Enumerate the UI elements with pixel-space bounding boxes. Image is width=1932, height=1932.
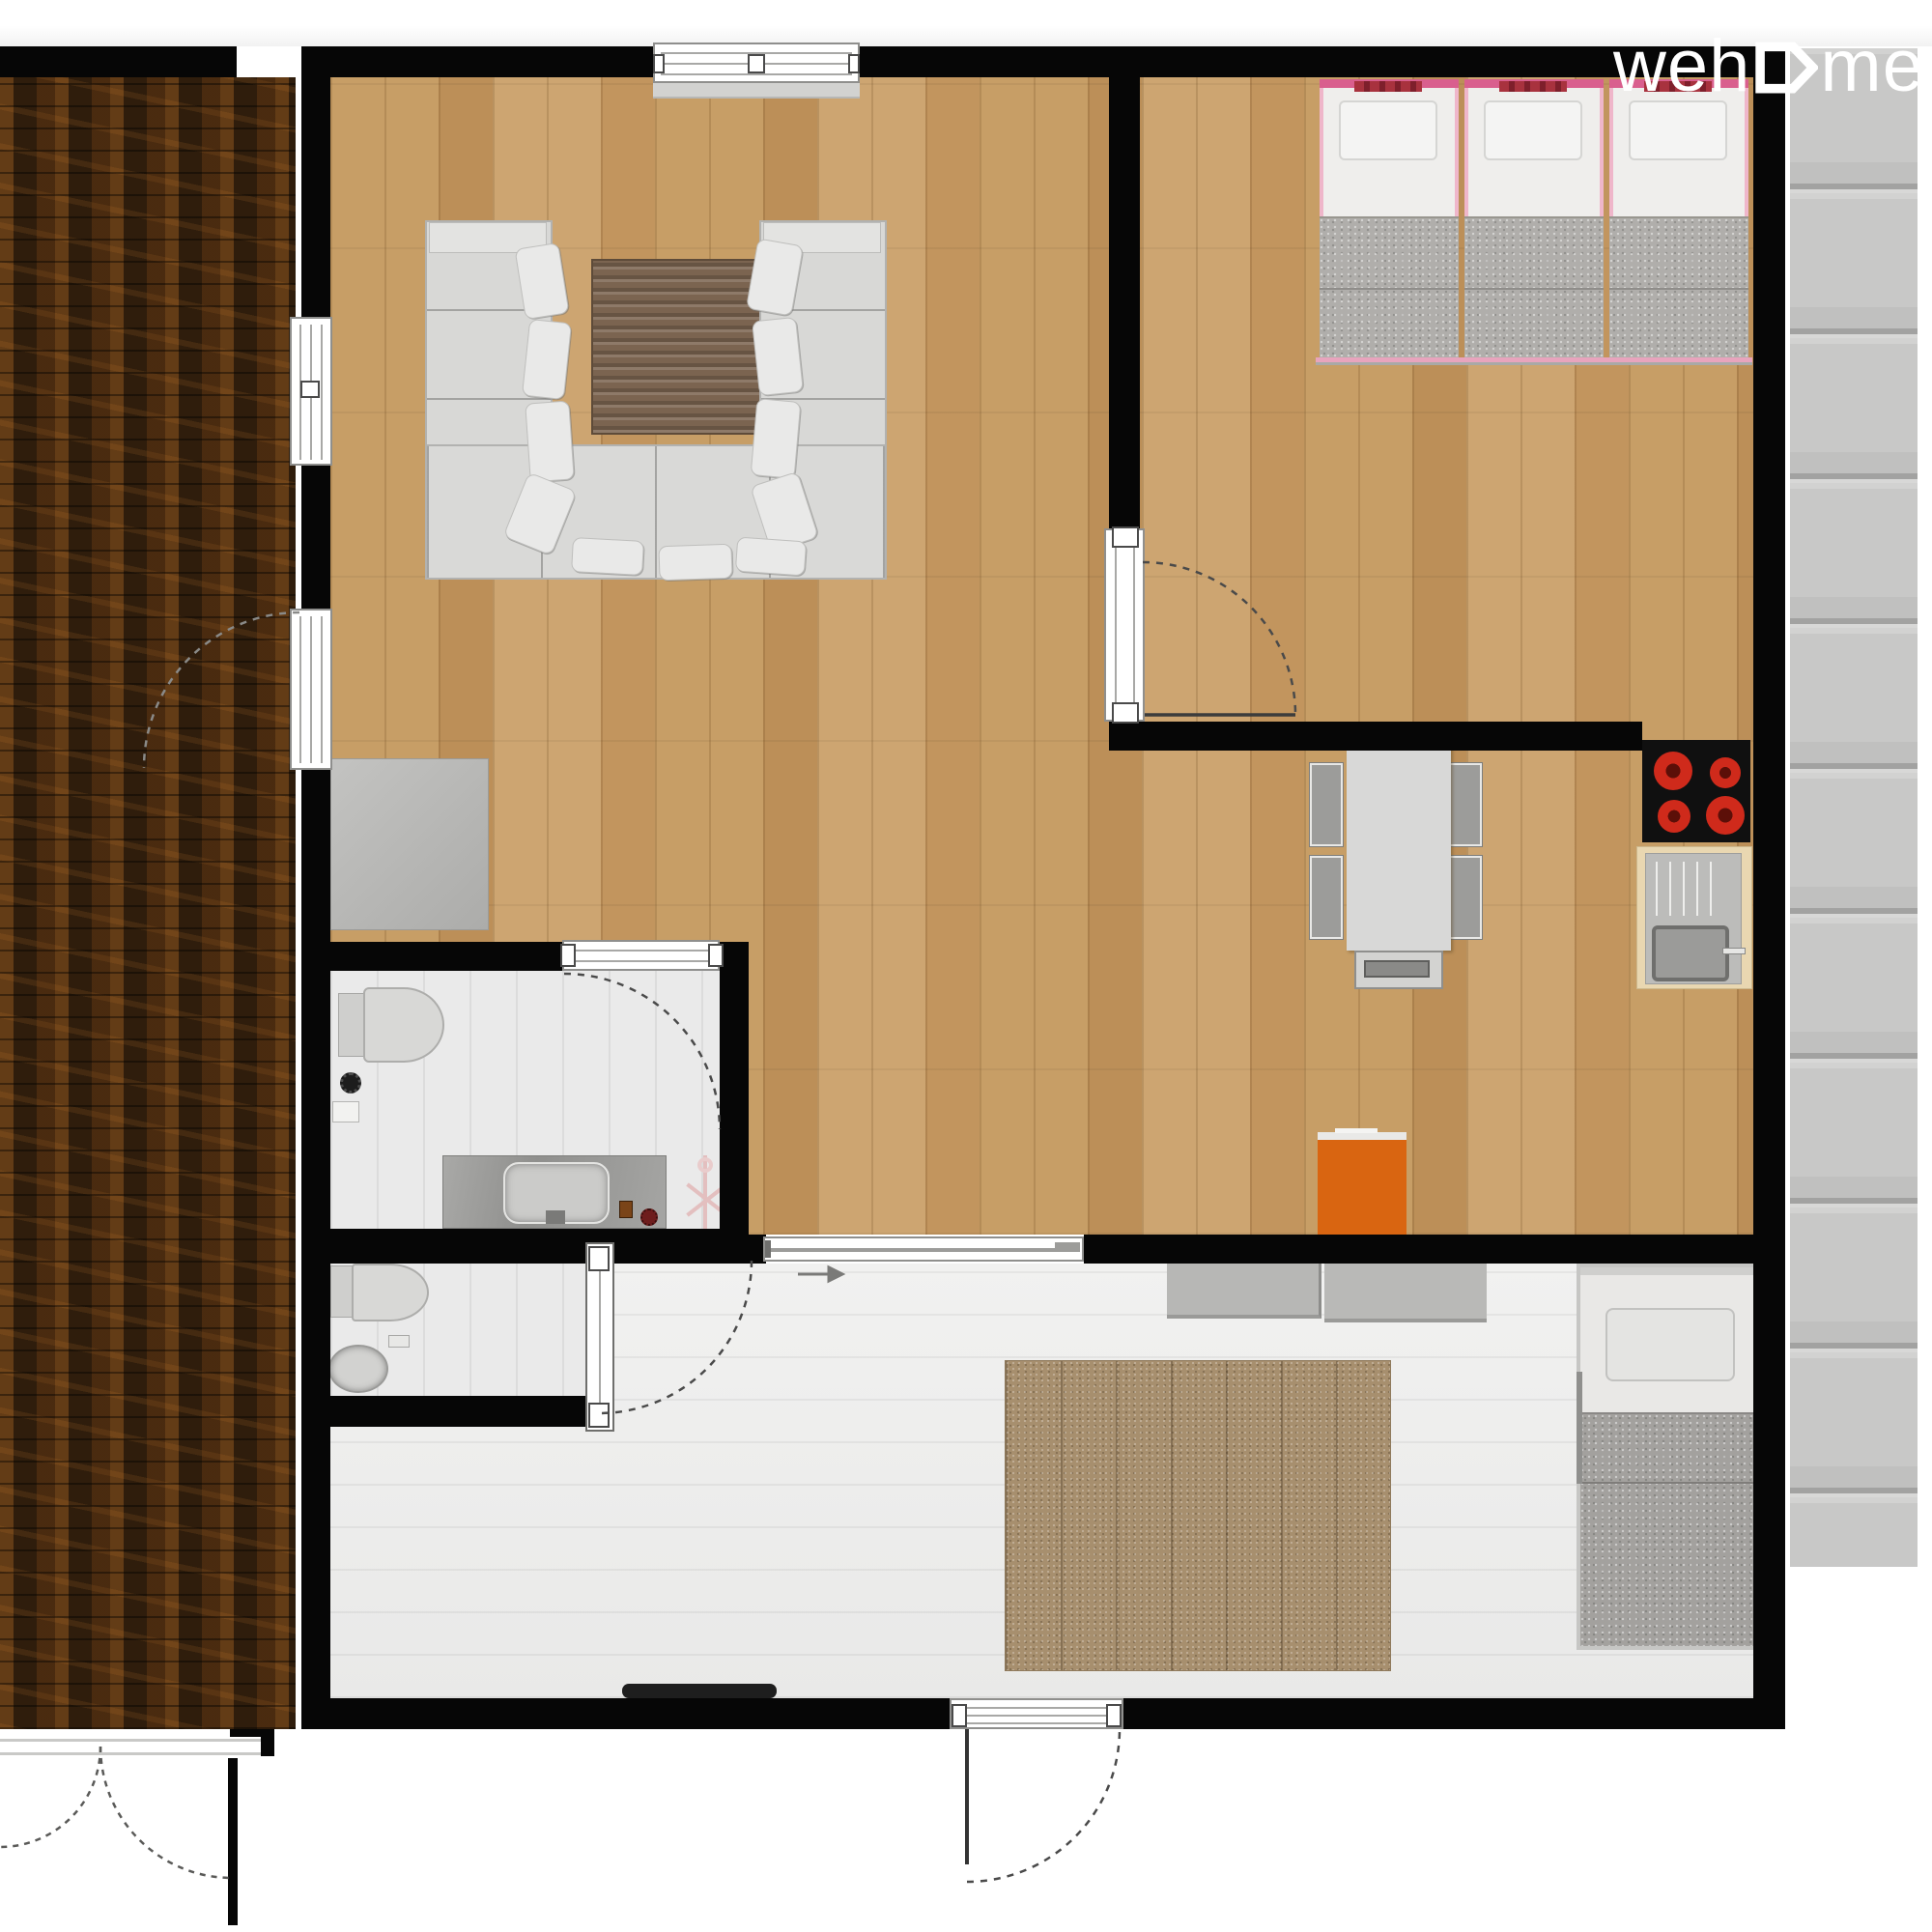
floor-plan: weh me [0,0,1932,1932]
bed-head-rail [1580,1267,1758,1275]
bed-side-rail [1577,1372,1582,1484]
bed-blanket [1580,1412,1758,1646]
sliding-door-frame [763,1236,1084,1262]
area-rug [1005,1360,1391,1671]
side-cabinet [330,758,489,930]
bed-pillow [1484,100,1582,160]
entry-single-bed [1577,1264,1762,1650]
right-wall [1753,46,1785,1729]
left-wall-upper [301,46,330,319]
faucet [1723,949,1745,953]
bedroom-partition-wall [1109,46,1140,528]
toilet-tank [338,993,365,1057]
dining-table [1347,744,1451,951]
sofa-pillow [752,317,804,396]
bed-pillow [1339,100,1437,160]
flower-pot [640,1208,658,1226]
bathroom-right-wall [720,942,749,1264]
dining-chair [1449,856,1482,939]
sofa-pillow [751,398,802,479]
burner [1658,800,1690,833]
bathroom-toilet [338,987,446,1063]
floor-drain [340,1072,361,1094]
counter-steel-top [1645,853,1742,984]
mainroom-bottom-wall [1084,1235,1753,1264]
sofa-bottom-seat [425,444,887,580]
sink-basin [1652,925,1729,981]
burner [1654,752,1692,790]
bathroom-bottom-wall [301,1229,749,1264]
stone-vanity [442,1155,667,1229]
bed-pillow [1605,1308,1735,1381]
burner [1710,757,1741,788]
bed-blanket [1464,216,1604,359]
bottom-wall-left [301,1698,952,1729]
sofa-pillow [571,537,644,576]
single-bed-3 [1609,79,1748,365]
dining-chair [1449,763,1482,846]
bottom-wall-right [1123,1698,1785,1729]
entrance-door-frame [950,1698,1123,1729]
bath-shelf [332,1101,359,1122]
deck-double-door-arc-left [0,1747,100,1847]
wehome-logo: weh me [1557,25,1924,106]
sink-counter [1636,846,1752,989]
toilet-bowl [363,987,444,1063]
top-window-sill [653,83,860,99]
storage-bench-2 [1324,1259,1487,1322]
burner [1706,796,1745,835]
entrance-door-arc [967,1729,1120,1882]
wc-toilet [330,1264,431,1321]
deck-floor [0,77,296,1729]
house-arrow-icon [1754,38,1818,98]
orange-cabinet [1318,1132,1406,1235]
bed-red-pattern [1354,81,1422,92]
top-window [653,43,860,83]
bed-blanket [1609,216,1748,359]
terrace-floor [1790,48,1918,1567]
deck-door-frame [290,609,332,770]
single-bed-1 [1320,79,1459,365]
soap-cup [619,1201,633,1218]
dining-end-bench [1354,951,1443,989]
sofa-pillow [735,537,807,577]
deck-top-wall [0,46,237,77]
u-shaped-sofa [425,220,887,580]
bed-pillow [1629,100,1727,160]
bed-blanket [1320,216,1459,359]
bed-footboard [1316,357,1463,365]
cooktop [1642,740,1750,842]
exterior-wall-stub [228,1756,238,1925]
deck-double-door-arc-right [100,1747,232,1878]
logo-text-post: me [1820,24,1924,108]
sofa-pillow [658,544,732,582]
bathroom-door-frame [562,940,720,971]
bedroom-door-frame [1104,528,1145,722]
dining-chair [1310,856,1343,939]
deck-doors-track [0,1737,261,1758]
wc-glass-door [585,1242,614,1432]
wc-bottom-wall [301,1396,587,1427]
single-bed-2 [1464,79,1604,365]
storage-bench-1 [1167,1259,1321,1319]
vanity-tap [546,1210,565,1224]
wc-shelf [388,1335,410,1348]
bathroom-top-wall-a [301,942,562,971]
dining-chair [1310,763,1343,846]
bedroom-bottom-wall [1109,722,1642,751]
left-wall-mid [301,464,330,611]
wc-hand-basin [328,1345,388,1393]
left-wall-window [290,317,332,466]
sofa-pillow [525,400,575,482]
sofa-pillow [522,319,572,400]
logo-text-pre: weh [1613,24,1750,108]
doormat [622,1684,777,1698]
